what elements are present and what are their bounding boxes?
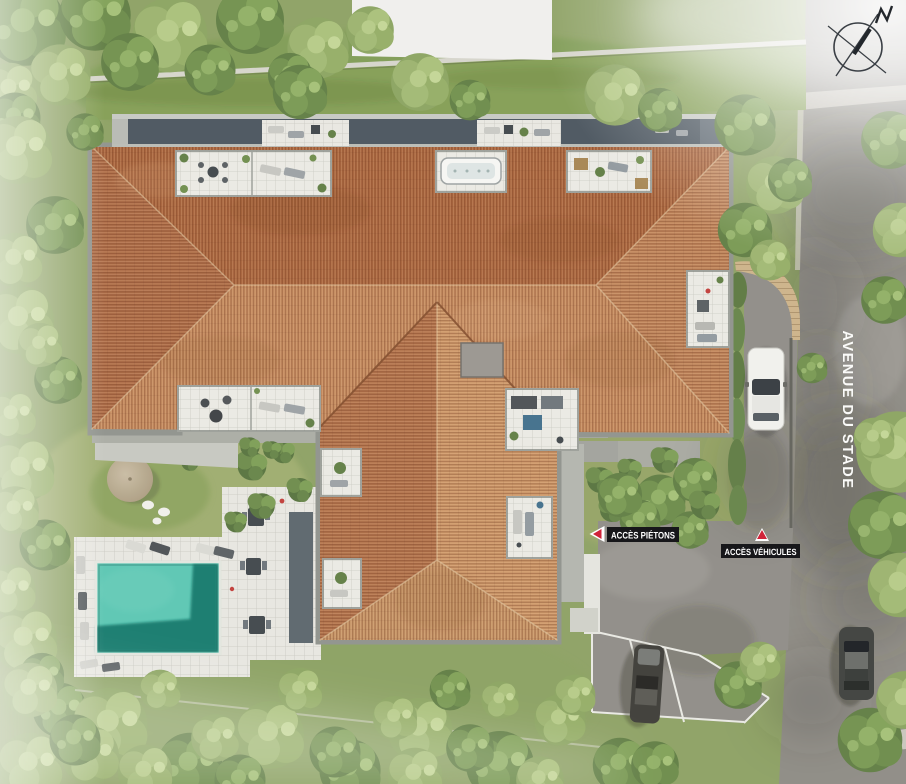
svg-text:ACCÈS VÉHICULES: ACCÈS VÉHICULES — [725, 547, 797, 557]
svg-text:ACCÈS PIÉTONS: ACCÈS PIÉTONS — [611, 530, 675, 542]
